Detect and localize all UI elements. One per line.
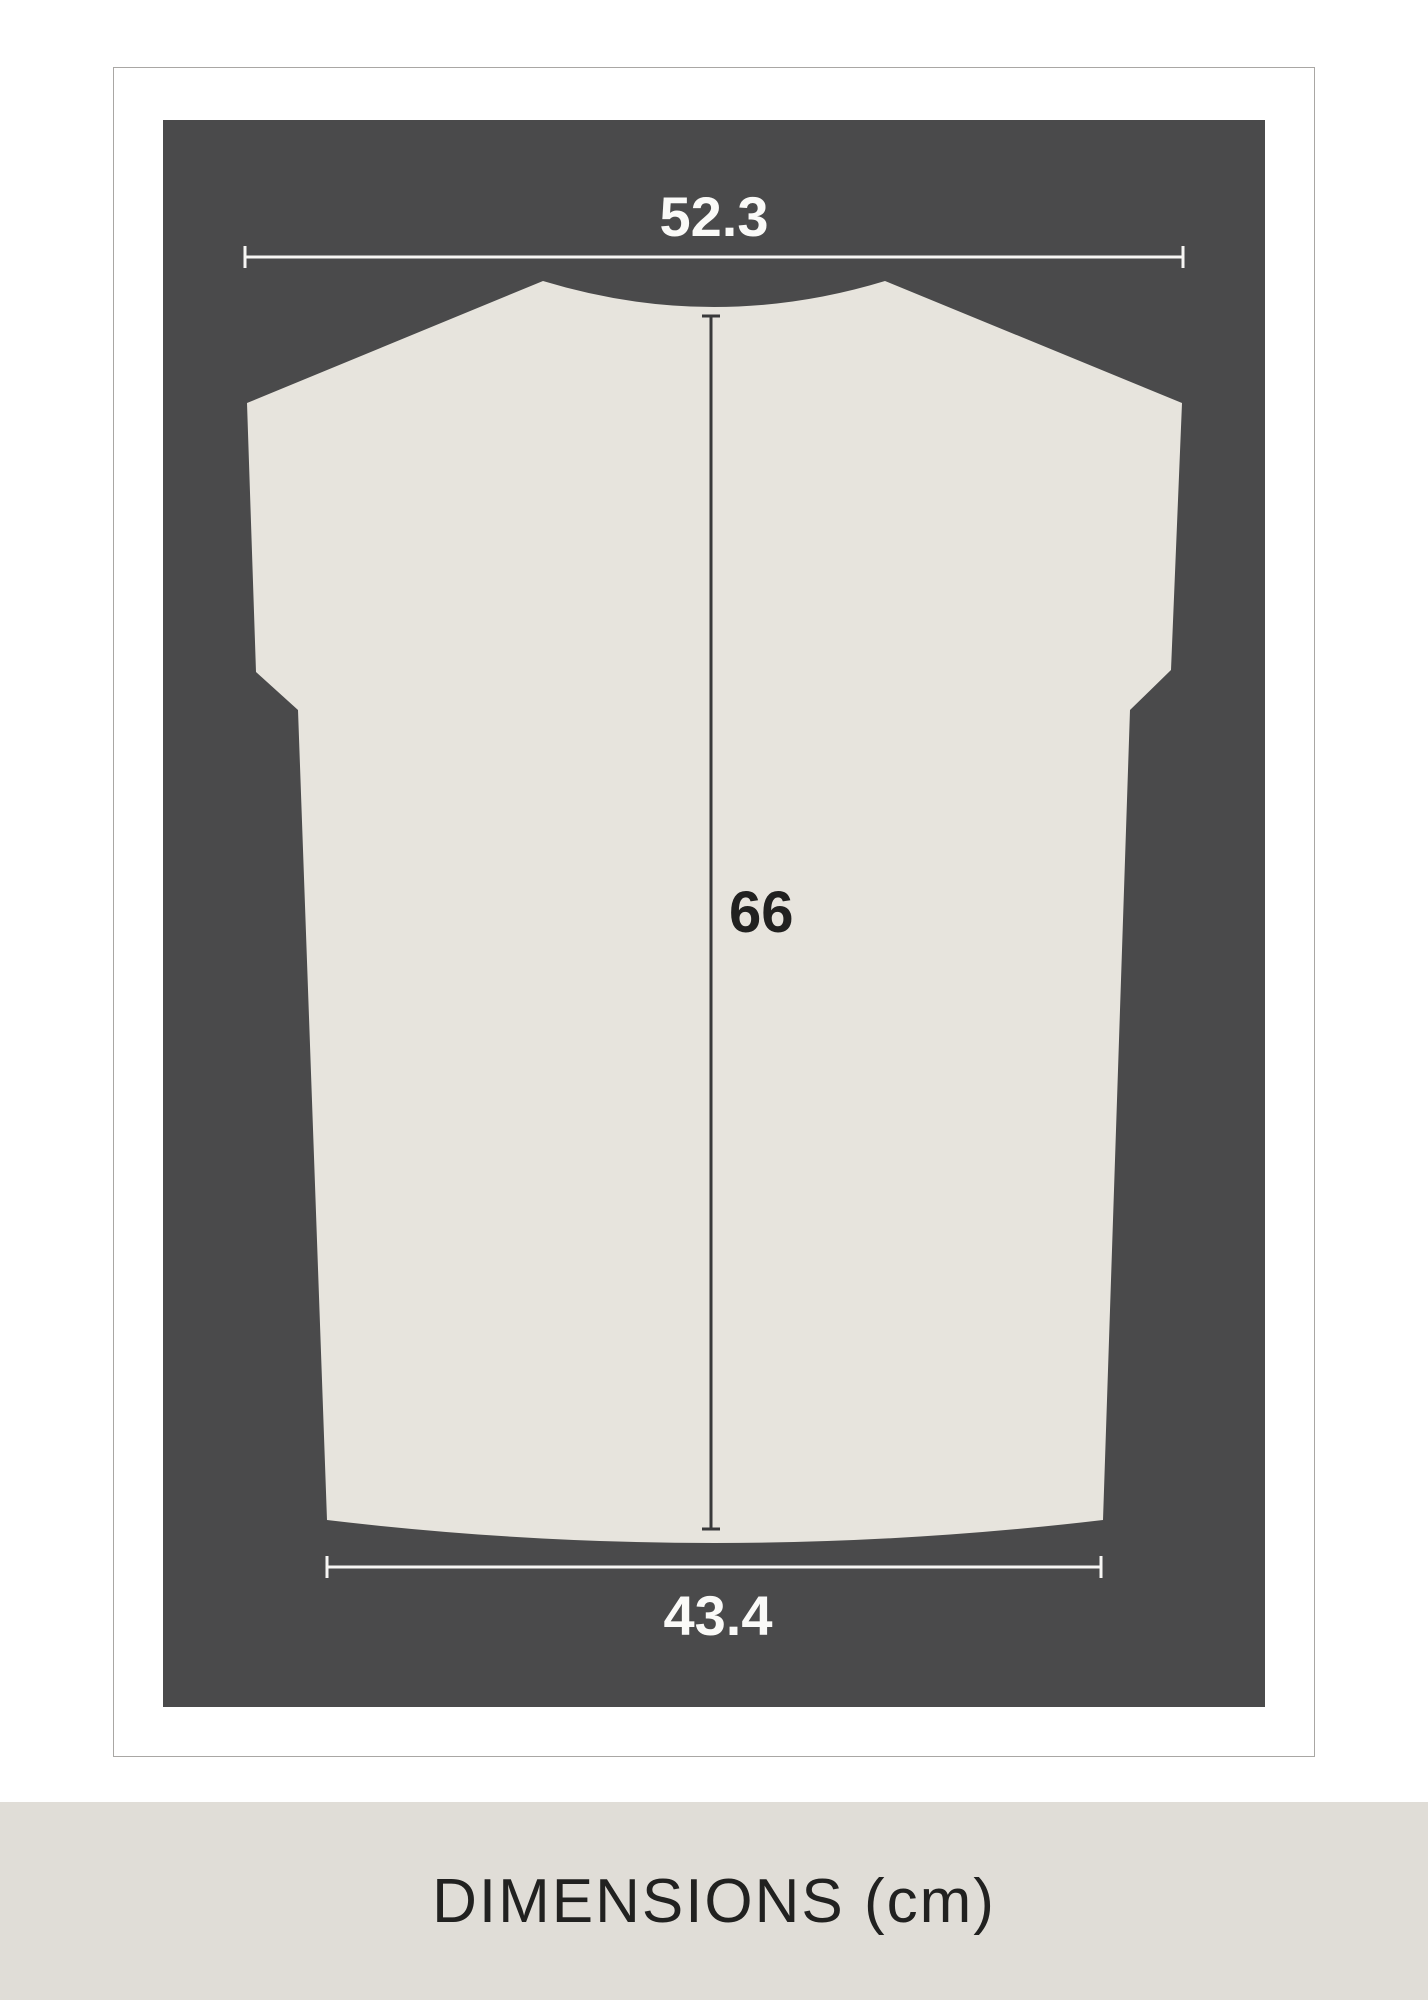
bottom-width-value: 43.4 [664, 1584, 773, 1647]
size-chart-card: 52.3 66 43.4 [113, 67, 1315, 1757]
footer-bar: DIMENSIONS (cm) [0, 1802, 1428, 2000]
tshirt-silhouette [247, 281, 1182, 1543]
bottom-width-dimension-line [327, 1556, 1101, 1578]
length-value: 66 [729, 880, 794, 945]
top-width-dimension-line [245, 246, 1183, 268]
dimensions-caption: DIMENSIONS (cm) [432, 1866, 996, 1937]
garment-diagram: 52.3 66 43.4 [163, 120, 1265, 1707]
top-width-value: 52.3 [660, 185, 769, 248]
diagram-panel: 52.3 66 43.4 [163, 120, 1265, 1707]
size-guide-page: 52.3 66 43.4 DIMENSIONS (cm) [0, 0, 1428, 2000]
